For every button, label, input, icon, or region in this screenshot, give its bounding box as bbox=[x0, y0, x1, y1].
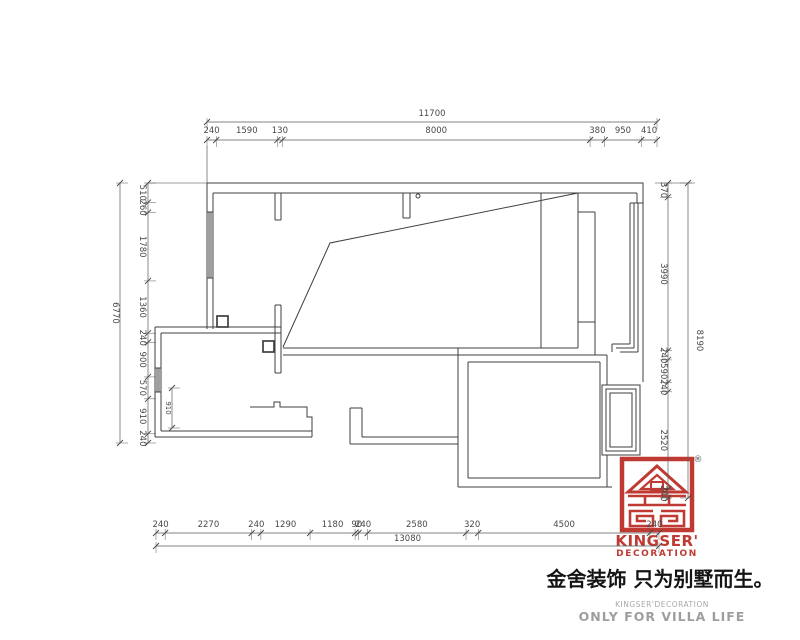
dim-label: 240 bbox=[658, 347, 668, 363]
dim-label: 11700 bbox=[418, 109, 445, 119]
dim-label: 320 bbox=[464, 520, 480, 530]
footer-slogan-english: ONLY FOR VILLA LIFE bbox=[560, 609, 764, 624]
dim-label: 240 bbox=[137, 330, 147, 346]
dim-label: 240 bbox=[203, 126, 219, 136]
dim-label: 130 bbox=[272, 126, 288, 136]
dim-label: 1290 bbox=[275, 520, 297, 530]
dim-label: 1360 bbox=[137, 296, 147, 318]
dim-label: 3990 bbox=[658, 263, 668, 285]
dim-label: 240 bbox=[248, 520, 264, 530]
dim-label: 2520 bbox=[658, 429, 668, 451]
dim-label: 8000 bbox=[425, 126, 447, 136]
dim-label: 900 bbox=[137, 352, 147, 368]
dim-label: 1780 bbox=[137, 236, 147, 258]
dim-label: 2580 bbox=[406, 520, 428, 530]
dim-label: 260 bbox=[137, 199, 147, 215]
footer-tagline-chinese: 金舍装饰 只为别墅而生。 bbox=[535, 563, 785, 592]
dim-label: 240 bbox=[355, 520, 371, 530]
dim-label: 240 bbox=[658, 379, 668, 395]
dim-label: 1590 bbox=[236, 126, 258, 136]
dim-label: 910 bbox=[137, 408, 147, 424]
dim-label: 240 bbox=[137, 430, 147, 446]
dim-label: 240 bbox=[152, 520, 168, 530]
dim-label: 8190 bbox=[694, 330, 704, 352]
dim-label: 410 bbox=[641, 126, 657, 136]
floor-plan-sheet: ® KINGSER' DECORATION 240159013080003809… bbox=[0, 0, 800, 640]
dimension-chains: 2401590130800038095041011700240227024012… bbox=[0, 0, 800, 640]
footer-brand-small: KINGSER'DECORATION bbox=[560, 600, 764, 609]
dim-label: 570 bbox=[137, 380, 147, 396]
dim-label: 6770 bbox=[110, 302, 120, 324]
dim-label: 370 bbox=[658, 182, 668, 198]
dim-label: 4500 bbox=[553, 520, 575, 530]
dim-label: 380 bbox=[589, 126, 605, 136]
dim-label: 2270 bbox=[198, 520, 220, 530]
dim-label: 950 bbox=[615, 126, 631, 136]
dim-label: 1180 bbox=[322, 520, 344, 530]
dim-label: 590 bbox=[658, 363, 668, 379]
dim-label: 240 bbox=[646, 520, 662, 530]
dim-label: 240 bbox=[658, 485, 668, 501]
dim-label: 910 bbox=[164, 401, 172, 414]
dim-label: 13080 bbox=[394, 534, 421, 544]
